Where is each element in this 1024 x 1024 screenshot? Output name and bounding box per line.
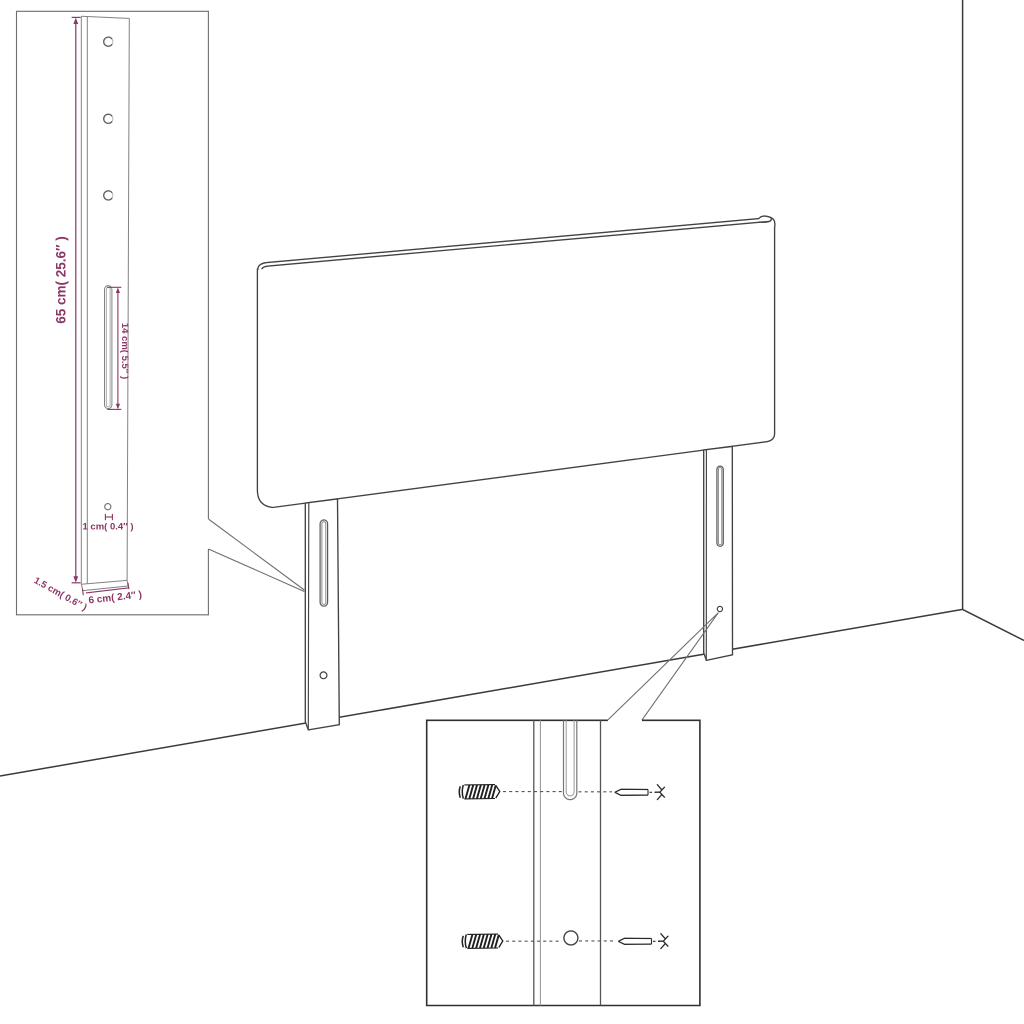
- svg-text:65 cm( 25.6″ ): 65 cm( 25.6″ ): [54, 236, 69, 324]
- svg-text:14 cm( 5.5″ ): 14 cm( 5.5″ ): [119, 323, 130, 379]
- svg-text:1 cm( 0.4″ ): 1 cm( 0.4″ ): [82, 522, 133, 533]
